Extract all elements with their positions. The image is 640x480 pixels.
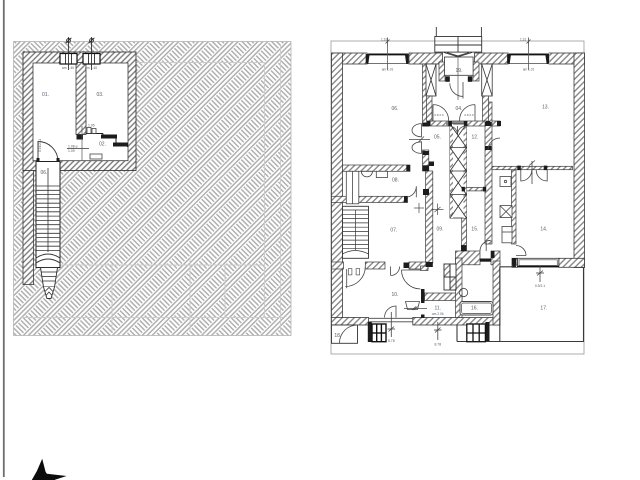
svg-text:14.: 14. bbox=[540, 227, 547, 233]
svg-text:06.: 06. bbox=[392, 106, 399, 112]
svg-text:03.: 03. bbox=[97, 92, 104, 98]
svg-text:12.: 12. bbox=[472, 134, 479, 140]
svg-text:1.31: 1.31 bbox=[520, 38, 526, 42]
svg-text:8.78: 8.78 bbox=[434, 343, 441, 347]
svg-text:1.31: 1.31 bbox=[381, 38, 387, 42]
svg-text:11.: 11. bbox=[435, 305, 442, 311]
svg-text:07.: 07. bbox=[390, 228, 397, 234]
svg-text:1.09: 1.09 bbox=[68, 149, 75, 153]
svg-text:0.8 2.0: 0.8 2.0 bbox=[434, 113, 444, 117]
svg-text:17.: 17. bbox=[540, 306, 547, 312]
svg-text:16.: 16. bbox=[471, 305, 478, 311]
svg-text:am 1.40: am 1.40 bbox=[85, 66, 97, 70]
svg-text:am 2.06: am 2.06 bbox=[432, 312, 444, 316]
svg-text:19.: 19. bbox=[456, 68, 463, 74]
svg-text:05.: 05. bbox=[434, 134, 441, 140]
svg-text:0.9/2.1: 0.9/2.1 bbox=[535, 284, 545, 288]
svg-text:1.05: 1.05 bbox=[88, 124, 95, 128]
svg-text:0.8 2.0: 0.8 2.0 bbox=[464, 113, 474, 117]
svg-text:am 1.01: am 1.01 bbox=[523, 68, 535, 72]
svg-text:01.: 01. bbox=[42, 92, 49, 98]
svg-text:09.: 09. bbox=[437, 227, 444, 233]
svg-text:am 1.01: am 1.01 bbox=[382, 68, 394, 72]
svg-text:06.: 06. bbox=[41, 170, 48, 176]
svg-text:02.: 02. bbox=[99, 142, 106, 148]
svg-text:0.91/2.11: 0.91/2.11 bbox=[38, 139, 42, 152]
svg-text:04.: 04. bbox=[456, 106, 463, 112]
svg-text:08.: 08. bbox=[392, 177, 399, 183]
svg-text:am 1.40: am 1.40 bbox=[62, 66, 74, 70]
svg-text:18.: 18. bbox=[334, 333, 341, 339]
svg-text:15.: 15. bbox=[471, 227, 478, 233]
svg-text:8.78: 8.78 bbox=[388, 339, 395, 343]
svg-text:10.: 10. bbox=[392, 292, 399, 298]
svg-text:1.08 ⌀: 1.08 ⌀ bbox=[68, 145, 78, 149]
svg-text:13.: 13. bbox=[542, 105, 549, 111]
